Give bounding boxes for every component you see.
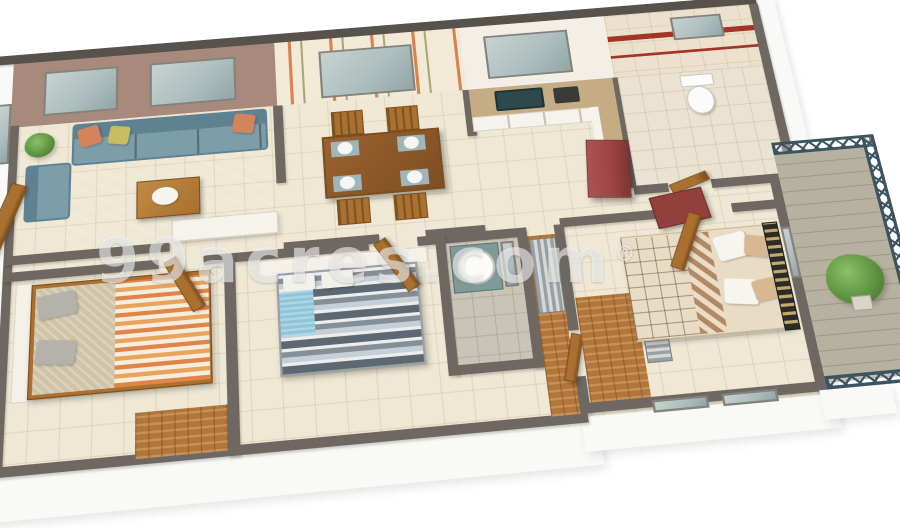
bedroom1-wood-ledge xyxy=(135,404,229,459)
refrigerator xyxy=(586,140,632,198)
dining-window xyxy=(318,44,416,98)
kitchen-sink xyxy=(494,87,545,111)
balcony-front-wall-stub xyxy=(819,384,898,420)
bedroom1-pillow-2 xyxy=(34,340,77,364)
watermark: 99acres.com® xyxy=(96,224,635,297)
balcony-plant-pot xyxy=(850,295,874,312)
bathroom1-window xyxy=(670,14,725,41)
dining-chair-3 xyxy=(337,197,372,226)
sofa-pillow-orange-right xyxy=(231,113,256,134)
kitchen-stove xyxy=(553,86,580,104)
living-window-2 xyxy=(150,57,237,107)
living-window-1 xyxy=(43,66,118,116)
kitchen-window xyxy=(483,30,573,79)
watermark-text: 99acres.com xyxy=(96,224,615,297)
sofa-pillow-yellow xyxy=(107,126,131,145)
floor-plan-render: 99acres.com® xyxy=(0,0,900,500)
watermark-registered-mark: ® xyxy=(615,241,635,265)
armchair xyxy=(23,162,71,223)
dining-chair-2 xyxy=(386,105,420,132)
dining-chair-1 xyxy=(331,110,365,137)
dining-chair-4 xyxy=(393,192,428,221)
